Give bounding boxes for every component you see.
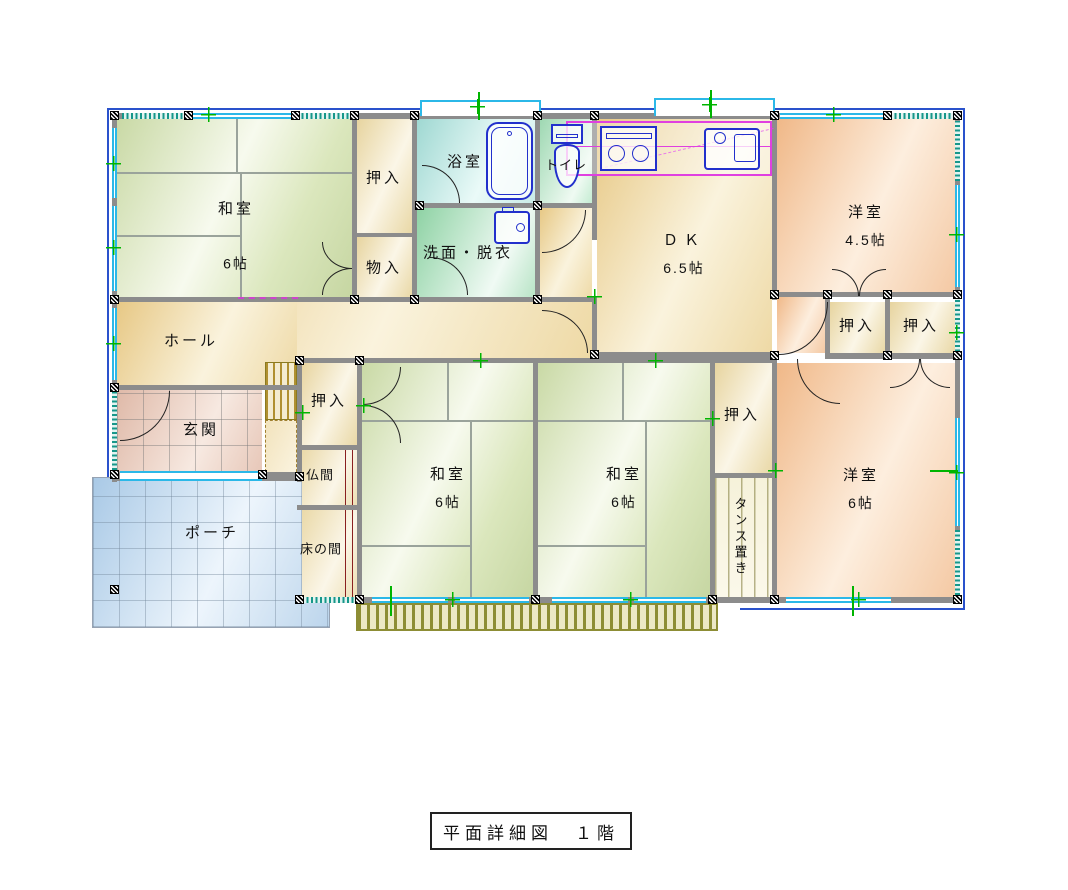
window [372, 597, 448, 603]
label-porch: ポーチ [185, 526, 239, 541]
tatami-line [538, 420, 710, 422]
post [883, 290, 892, 299]
grid-mark [949, 325, 964, 340]
wall-hatch [297, 113, 350, 119]
room-porch [92, 477, 330, 628]
tatami-line [538, 545, 645, 547]
window [634, 597, 706, 603]
wall [592, 352, 777, 358]
post [110, 295, 119, 304]
tatami-line [117, 172, 352, 174]
window [455, 597, 529, 603]
label-senmen: 洗面・脱衣 [423, 246, 513, 261]
post [110, 111, 119, 120]
deck [356, 603, 718, 631]
title-block: 平面詳細図 １階 [430, 812, 632, 850]
grid-mark [201, 107, 216, 122]
post [770, 290, 779, 299]
label-tokonoma: 床の間 [300, 543, 342, 556]
wall-hatch [955, 530, 960, 595]
label-oshiire-c: 押入 [311, 394, 347, 409]
post [295, 356, 304, 365]
toilet-icon [551, 124, 583, 144]
post [258, 470, 267, 479]
grid-mark [648, 353, 663, 368]
wall [772, 358, 777, 603]
wall [297, 505, 362, 510]
wall-hatch [302, 597, 355, 603]
post [883, 351, 892, 360]
porch-post [110, 585, 119, 594]
tatami-line [447, 363, 449, 420]
kitchen-stove-icon [600, 126, 657, 171]
label-oshiire-nw: 押入 [366, 171, 402, 186]
bathtub-icon [486, 122, 533, 200]
label-washitsu-c2: 和室6帖 [606, 467, 642, 509]
post [883, 111, 892, 120]
wall [885, 297, 890, 358]
tatami-line [362, 545, 470, 547]
wall [357, 358, 362, 603]
grid-tick [852, 586, 854, 616]
grid-mark [587, 289, 602, 304]
post [355, 595, 364, 604]
post [953, 595, 962, 604]
label-washitsu-c1: 和室6帖 [430, 467, 466, 509]
grid-mark [623, 592, 638, 607]
post [184, 111, 193, 120]
post [708, 595, 717, 604]
post [531, 595, 540, 604]
post [350, 111, 359, 120]
label-monoire: 物入 [366, 261, 402, 276]
grid-mark [949, 465, 964, 480]
wall [352, 233, 417, 237]
wall [535, 208, 540, 302]
post [953, 351, 962, 360]
post [953, 290, 962, 299]
label-toire: トイレ [545, 159, 587, 172]
tatami-line [236, 119, 238, 172]
window [786, 597, 891, 603]
wall [533, 363, 538, 603]
post [355, 356, 364, 365]
post [953, 111, 962, 120]
grid-mark [826, 107, 841, 122]
grid-mark [106, 336, 121, 351]
post [295, 472, 304, 481]
tatami-line [622, 363, 624, 420]
post [770, 595, 779, 604]
wall [112, 385, 302, 390]
label-oshiire-ne1: 押入 [839, 319, 875, 334]
entrance-sliding-door [120, 471, 262, 481]
shoe-cabinet [265, 362, 297, 420]
post [410, 111, 419, 120]
post [110, 383, 119, 392]
wall [772, 113, 777, 300]
post [295, 595, 304, 604]
grid-tick [390, 586, 392, 616]
label-butsuma: 仏間 [306, 469, 334, 482]
wall-hatch [122, 113, 186, 119]
grid-mark [106, 240, 121, 255]
post [533, 201, 542, 210]
floor-plan: 和室6帖 押入 物入 浴室 トイレ 洗面・脱衣 ＤＫ6.5帖 洋室4.5帖 押入… [0, 0, 1068, 890]
wall-hatch [890, 113, 953, 119]
label-yokushitsu: 浴室 [447, 155, 483, 170]
kitchen-sink-icon [704, 128, 760, 170]
exterior-line-right [963, 108, 965, 610]
wall-hatch [955, 121, 960, 181]
grid-tick [478, 92, 480, 120]
grid-mark [356, 398, 371, 413]
post [350, 295, 359, 304]
wall-hatch [112, 390, 117, 470]
grid-mark [949, 227, 964, 242]
label-yoshitsu-se: 洋室6帖 [843, 468, 879, 510]
label-tansu: タンス置き [734, 497, 747, 577]
post [590, 350, 599, 359]
grid-mark [705, 411, 720, 426]
grid-mark [768, 463, 783, 478]
wall [710, 363, 715, 603]
post [533, 111, 542, 120]
grid-tick [710, 90, 712, 118]
wall [297, 445, 362, 450]
label-dk: ＤＫ6.5帖 [663, 233, 705, 275]
drawing-title: 平面詳細図 １階 [443, 819, 619, 844]
label-genkan: 玄関 [183, 423, 219, 438]
label-yoshitsu-ne: 洋室4.5帖 [845, 205, 886, 247]
tokonoma-post-lines [345, 450, 353, 598]
fusuma-dashed-line [238, 297, 298, 299]
post [823, 290, 832, 299]
wall [297, 362, 302, 482]
label-oshiire-ne2: 押入 [903, 319, 939, 334]
grid-mark [106, 156, 121, 171]
label-oshiire-e: 押入 [724, 408, 760, 423]
shoe-storage [265, 420, 297, 477]
post [415, 201, 424, 210]
post [770, 111, 779, 120]
grid-mark [445, 592, 460, 607]
wall [352, 113, 357, 302]
post [590, 111, 599, 120]
label-hall: ホール [164, 334, 218, 349]
post [110, 470, 119, 479]
post [410, 295, 419, 304]
grid-tick [930, 470, 958, 472]
wall [710, 473, 777, 478]
wash-basin-icon [494, 211, 530, 244]
window [552, 597, 628, 603]
post [770, 351, 779, 360]
wall-hatch [955, 292, 960, 356]
post [291, 111, 300, 120]
post [533, 295, 542, 304]
label-washitsu-nw: 和室6帖 [218, 202, 254, 271]
grid-mark [473, 353, 488, 368]
tatami-line [645, 420, 647, 598]
wall [535, 113, 540, 208]
tatami-line [470, 420, 472, 598]
grid-mark [295, 405, 310, 420]
